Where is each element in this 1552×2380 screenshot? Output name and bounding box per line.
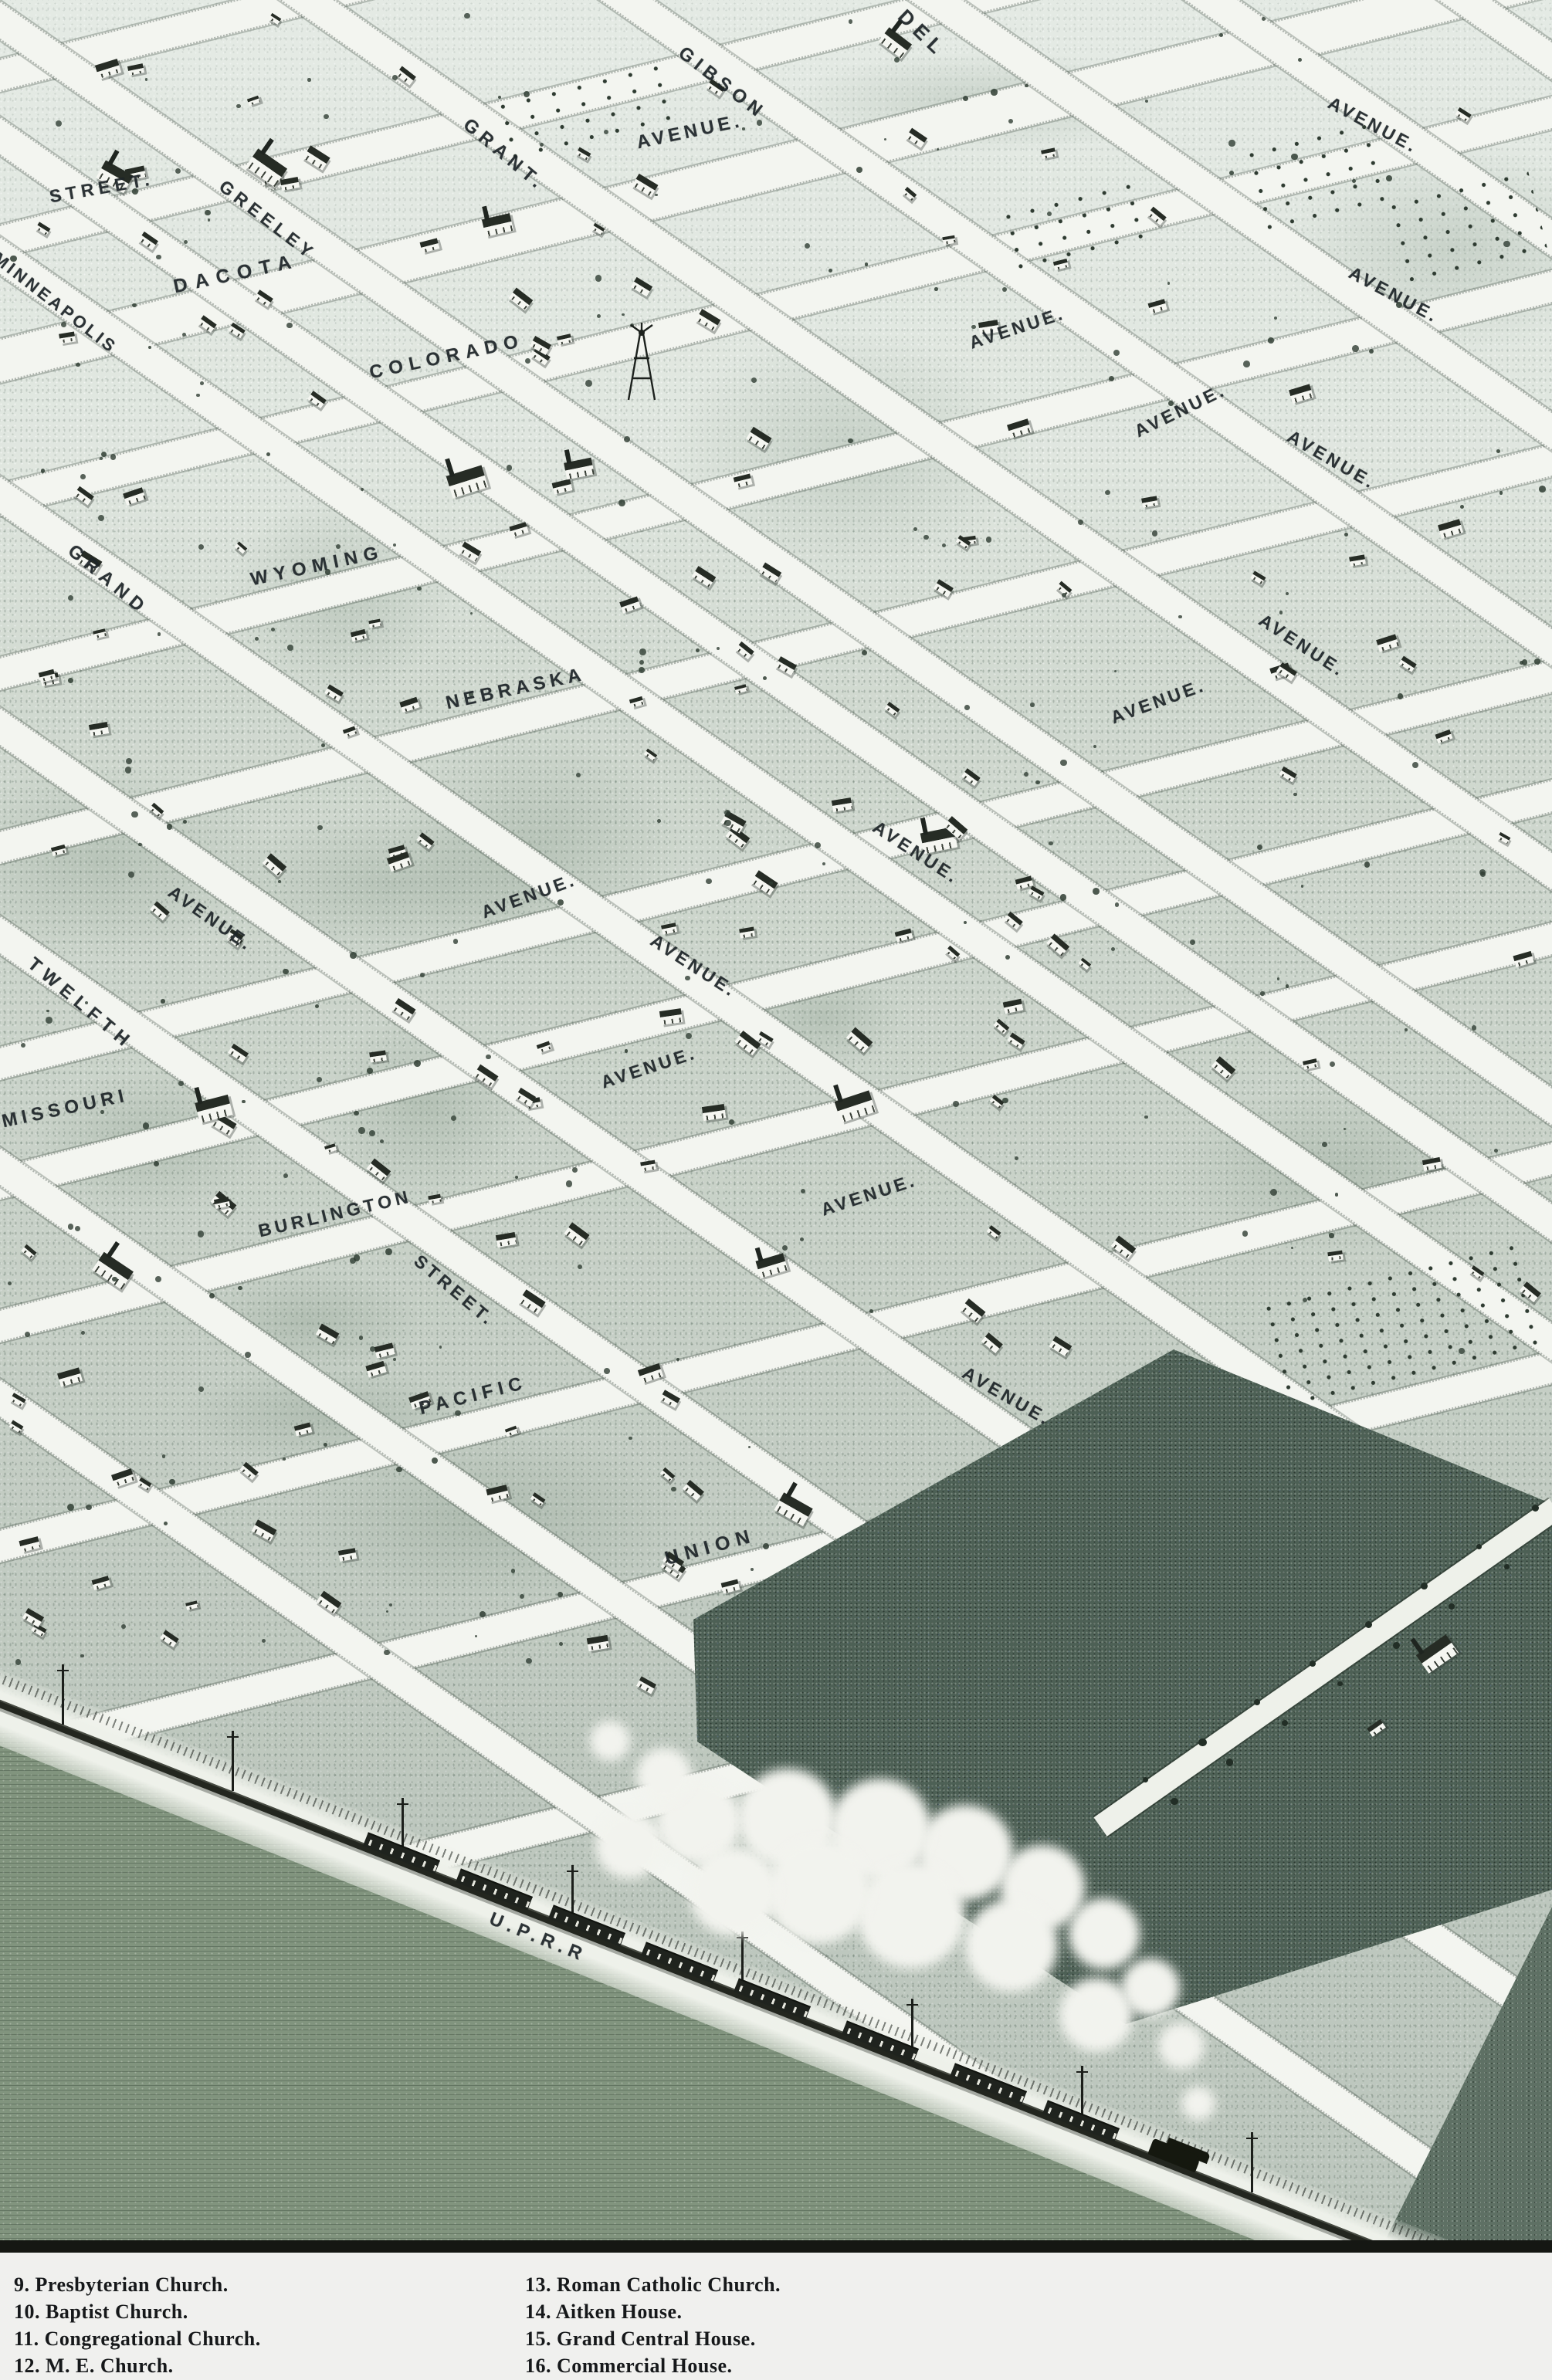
house [1007, 1033, 1025, 1049]
tree [1494, 1149, 1498, 1153]
tree [350, 1258, 356, 1264]
tree [56, 120, 62, 127]
tree [278, 880, 281, 883]
house [564, 458, 595, 480]
tree [782, 1245, 788, 1251]
tree [520, 1594, 524, 1599]
tree [1262, 17, 1266, 21]
tree [676, 1358, 679, 1361]
tree [1114, 670, 1117, 672]
tree [1257, 845, 1262, 850]
house [247, 96, 260, 106]
tree [242, 1100, 245, 1103]
house [496, 1232, 517, 1248]
street-label: AVENUE. [967, 303, 1068, 353]
house [636, 1677, 656, 1694]
tree [315, 1004, 319, 1008]
legend: 9. Presbyterian Church.10. Baptist Churc… [0, 2253, 1552, 2380]
tree [963, 96, 968, 101]
tree [639, 660, 644, 665]
map-artwork: DELGIBSONGRANT.AVENUE.STREET.GREELEYMINN… [0, 0, 1552, 2253]
tree [1060, 894, 1067, 901]
tree [21, 1043, 25, 1048]
house [552, 479, 572, 495]
house [1399, 655, 1417, 672]
tree [138, 843, 141, 846]
tree [128, 872, 134, 878]
tree [1145, 100, 1149, 103]
roadside-tree [1476, 1544, 1482, 1549]
tree [1093, 745, 1096, 748]
tree [1522, 659, 1527, 665]
tree [849, 19, 852, 23]
tree [324, 114, 329, 120]
house [315, 1324, 339, 1345]
tree [1111, 947, 1115, 951]
legend-item: 16. Commercial House. [525, 2352, 781, 2379]
tree [464, 13, 469, 19]
orchard-grid [995, 173, 1164, 275]
tree [1460, 505, 1464, 509]
tree [1190, 939, 1195, 945]
tree [145, 78, 148, 81]
orchard-grid [1381, 164, 1550, 294]
tree [578, 1264, 582, 1269]
tree [350, 952, 357, 959]
tree [986, 537, 992, 543]
house [644, 749, 657, 761]
house [92, 1576, 111, 1590]
tree [1242, 1231, 1249, 1237]
tree [358, 1127, 364, 1133]
tree [158, 632, 161, 635]
tree [1167, 282, 1171, 285]
smoke-puff [1069, 1898, 1140, 1969]
tree [801, 1189, 805, 1193]
tree [25, 1332, 30, 1337]
tree [597, 314, 601, 319]
tree [354, 1111, 358, 1116]
house [1141, 496, 1158, 508]
tree [162, 1454, 166, 1458]
tree [389, 1603, 392, 1606]
tree [164, 1522, 168, 1525]
house [338, 1548, 357, 1561]
tree [829, 269, 832, 273]
tree [155, 1276, 161, 1282]
tree [68, 1224, 74, 1230]
tree [1459, 1348, 1465, 1354]
house [747, 426, 772, 449]
house [661, 923, 677, 934]
house [1028, 885, 1045, 899]
telegraph-pole [1251, 2132, 1253, 2192]
tree [848, 438, 853, 444]
tree [1286, 984, 1289, 987]
tree [208, 218, 210, 221]
tree [724, 820, 730, 826]
house [235, 542, 248, 554]
tree [367, 1068, 373, 1074]
roadside-tree [1393, 1642, 1400, 1649]
house [280, 177, 299, 191]
tree [540, 143, 544, 147]
tree [15, 1659, 21, 1664]
house [1041, 147, 1056, 159]
tree [1274, 317, 1278, 320]
tree [238, 1286, 242, 1291]
tree [1499, 491, 1503, 494]
tree [1369, 349, 1374, 354]
roadside-tree [1337, 1681, 1343, 1687]
telegraph-pole [232, 1731, 234, 1791]
tree [1002, 1098, 1008, 1103]
tree [1301, 885, 1303, 887]
tree [557, 1592, 562, 1596]
roadside-tree [1198, 1738, 1207, 1747]
tree [729, 1119, 734, 1125]
tree [1386, 175, 1392, 181]
house [1079, 957, 1091, 969]
house [1328, 1250, 1344, 1261]
street-label: AVENUE. [818, 1170, 920, 1220]
house [351, 629, 368, 642]
tree [205, 210, 211, 216]
tree [126, 758, 132, 764]
house [961, 768, 980, 785]
tree [68, 595, 73, 601]
tree [800, 1237, 804, 1241]
tree [815, 842, 821, 848]
tree [572, 1167, 578, 1173]
house [324, 685, 344, 702]
birdseye-map-page: DELGIBSONGRANT.AVENUE.STREET.GREELEYMINN… [0, 0, 1552, 2380]
tree [132, 303, 137, 308]
tree [585, 380, 592, 387]
house [228, 1044, 249, 1062]
tree [271, 628, 275, 631]
house-body [832, 804, 852, 813]
house [486, 1485, 510, 1502]
legend-item: 11. Congregational Church. [14, 2325, 261, 2352]
tree [80, 474, 86, 479]
tree [1534, 658, 1540, 665]
tree [923, 535, 929, 540]
tree [629, 1437, 632, 1441]
tree [110, 454, 117, 460]
tree [1329, 1233, 1333, 1237]
tree [81, 1331, 85, 1335]
tree [370, 1346, 375, 1352]
tree [262, 1639, 266, 1643]
house [369, 1050, 386, 1062]
legend-item: 12. M. E. Church. [14, 2352, 261, 2379]
house [1147, 299, 1167, 313]
house [683, 1480, 704, 1501]
tree [41, 469, 45, 472]
tree [913, 527, 917, 531]
house [660, 1468, 676, 1482]
tree [618, 499, 625, 506]
tree [1049, 841, 1052, 845]
tree [1260, 991, 1264, 995]
house [846, 1027, 873, 1053]
tree [1277, 977, 1279, 980]
tree [198, 1231, 205, 1237]
roadside-tree [1226, 1759, 1233, 1766]
house [366, 1361, 387, 1377]
tree [1229, 171, 1234, 175]
tree [937, 148, 939, 151]
tree [321, 743, 325, 747]
tree [80, 1654, 84, 1658]
house [369, 619, 381, 628]
tree [856, 167, 862, 173]
tree [865, 262, 868, 266]
house [1289, 384, 1313, 404]
legend-item: 9. Presbyterian Church. [14, 2271, 261, 2298]
tree [1405, 1028, 1408, 1031]
house [416, 832, 434, 849]
tree [393, 543, 396, 547]
tree [1060, 760, 1066, 766]
roadside-tree [1171, 1798, 1178, 1806]
tree [511, 1569, 516, 1573]
tree [1152, 530, 1158, 537]
tree [1279, 611, 1283, 614]
house [692, 566, 716, 587]
tree [971, 325, 976, 330]
tree [1291, 1247, 1293, 1249]
house-body [369, 622, 381, 628]
house [832, 798, 852, 813]
roadside-tree [1254, 1699, 1260, 1705]
tree [526, 1658, 531, 1664]
tree [1352, 345, 1359, 352]
house [263, 853, 286, 876]
tree [624, 436, 630, 442]
tree [67, 1504, 74, 1511]
tree [393, 1358, 396, 1361]
telegraph-pole [62, 1664, 64, 1725]
tree [1035, 780, 1039, 784]
tree [131, 811, 138, 818]
street-label: AVENUE. [1108, 675, 1208, 728]
windmill-icon [624, 323, 659, 407]
house [294, 1423, 312, 1437]
tree [805, 243, 810, 249]
tree [1105, 490, 1110, 495]
tree [317, 1077, 322, 1082]
smoke-puff [1181, 2087, 1215, 2121]
house [89, 722, 109, 736]
tree [369, 1130, 375, 1136]
tree [1109, 376, 1114, 381]
tree [1503, 241, 1510, 247]
tree [486, 1055, 491, 1060]
tree [86, 1505, 91, 1510]
legend-item: 10. Baptist Church. [14, 2298, 261, 2325]
tree [1539, 486, 1546, 493]
tree [1286, 592, 1289, 595]
house [701, 1104, 725, 1121]
tree [964, 921, 967, 924]
smoke-puff [595, 1811, 663, 1879]
tree [386, 1610, 388, 1613]
house [22, 1608, 44, 1627]
tree [396, 1467, 402, 1472]
tree [566, 1180, 573, 1187]
tree [143, 1122, 149, 1129]
legend-column-left: 9. Presbyterian Church.10. Baptist Churc… [14, 2271, 261, 2379]
tree [287, 645, 293, 651]
house [1251, 570, 1266, 584]
tree [1078, 520, 1083, 525]
tree [361, 488, 364, 491]
tree [1030, 702, 1035, 707]
smoke-puff [636, 1748, 692, 1803]
tree [380, 1139, 384, 1143]
tree [236, 104, 241, 109]
tree [1228, 140, 1235, 146]
tree [686, 1033, 692, 1039]
street-label: MISSOURI [0, 1085, 130, 1132]
house [993, 1018, 1008, 1034]
tree [255, 637, 259, 641]
tree [283, 969, 289, 975]
map-canvas: DELGIBSONGRANT.AVENUE.STREET.GREELEYMINN… [0, 0, 1552, 2253]
tree [1062, 593, 1066, 598]
smoke-puff [590, 1721, 630, 1761]
tree [671, 1487, 676, 1492]
tree [46, 1017, 53, 1024]
tree [384, 1650, 390, 1656]
house [1349, 554, 1366, 567]
house-tower [108, 150, 120, 166]
tree [894, 57, 900, 63]
tree [1144, 1116, 1148, 1119]
house [739, 927, 755, 939]
tree [625, 1049, 628, 1052]
legend-item: 13. Roman Catholic Church. [525, 2271, 781, 2298]
tree [169, 1479, 175, 1485]
tree [178, 1081, 184, 1086]
tree [1270, 1189, 1277, 1196]
tree [559, 1642, 563, 1646]
tree [934, 287, 938, 291]
tree [1472, 1025, 1477, 1031]
tree [595, 275, 601, 281]
house [884, 702, 900, 716]
house [1211, 1057, 1236, 1080]
tree [1344, 1128, 1346, 1130]
house [400, 697, 420, 713]
house [1003, 998, 1023, 1013]
tree [76, 363, 80, 367]
tree [576, 773, 581, 777]
house [620, 596, 641, 613]
street-label: AVENUE. [598, 1042, 700, 1092]
tree [1344, 533, 1348, 537]
tree [622, 313, 624, 316]
tree [953, 1101, 959, 1107]
house [508, 287, 532, 310]
smoke-puff [689, 1847, 778, 1936]
house [1435, 730, 1452, 743]
tree [604, 1368, 610, 1374]
tree [385, 1248, 392, 1255]
roadside-tree [1282, 1720, 1288, 1726]
smoke-puff [1158, 2023, 1205, 2069]
house [21, 1244, 36, 1258]
legend-item: 15. Grand Central House. [525, 2325, 781, 2352]
tree [184, 240, 188, 244]
tree [68, 678, 73, 683]
tree [639, 648, 646, 655]
smoke-puff [857, 1860, 965, 1969]
tree [991, 89, 998, 96]
tree [657, 819, 661, 823]
tree [125, 767, 132, 774]
tree [336, 544, 341, 549]
smoke-puff [766, 1839, 871, 1944]
tree [307, 78, 310, 81]
tree [112, 1277, 117, 1282]
tree [685, 976, 690, 980]
tree [1364, 862, 1370, 867]
legend-item: 14. Aitken House. [525, 2298, 781, 2325]
house [943, 235, 956, 244]
tree [198, 1386, 204, 1392]
house [1422, 1157, 1442, 1171]
tree [324, 1443, 327, 1447]
house [1438, 519, 1463, 539]
map-bottom-border [0, 2240, 1552, 2253]
tree [283, 1457, 286, 1461]
house [374, 1342, 395, 1358]
tree [696, 648, 700, 652]
legend-column-right: 13. Roman Catholic Church.14. Aitken Hou… [525, 2271, 781, 2379]
house [150, 902, 170, 921]
tree [417, 587, 422, 591]
tree [98, 515, 104, 521]
tree [317, 825, 323, 831]
tree [1015, 1156, 1018, 1160]
house [57, 1367, 83, 1386]
house [124, 487, 147, 505]
tree [1322, 1142, 1327, 1147]
house [1279, 767, 1297, 783]
tree [751, 1568, 754, 1571]
tree [46, 1010, 49, 1013]
tree [439, 1346, 442, 1348]
tree [942, 543, 946, 547]
tree [154, 1161, 159, 1166]
house [127, 63, 144, 76]
tree [507, 465, 513, 471]
tree [1219, 33, 1223, 37]
house [564, 1222, 590, 1246]
roadside-tree [1421, 1583, 1428, 1589]
tree [862, 650, 867, 655]
tree [283, 1173, 288, 1178]
house [185, 1601, 198, 1610]
tree [359, 1336, 363, 1339]
tree [175, 168, 181, 174]
house [1049, 1336, 1072, 1357]
house [1376, 634, 1398, 652]
roadside-tree [1310, 1661, 1316, 1667]
